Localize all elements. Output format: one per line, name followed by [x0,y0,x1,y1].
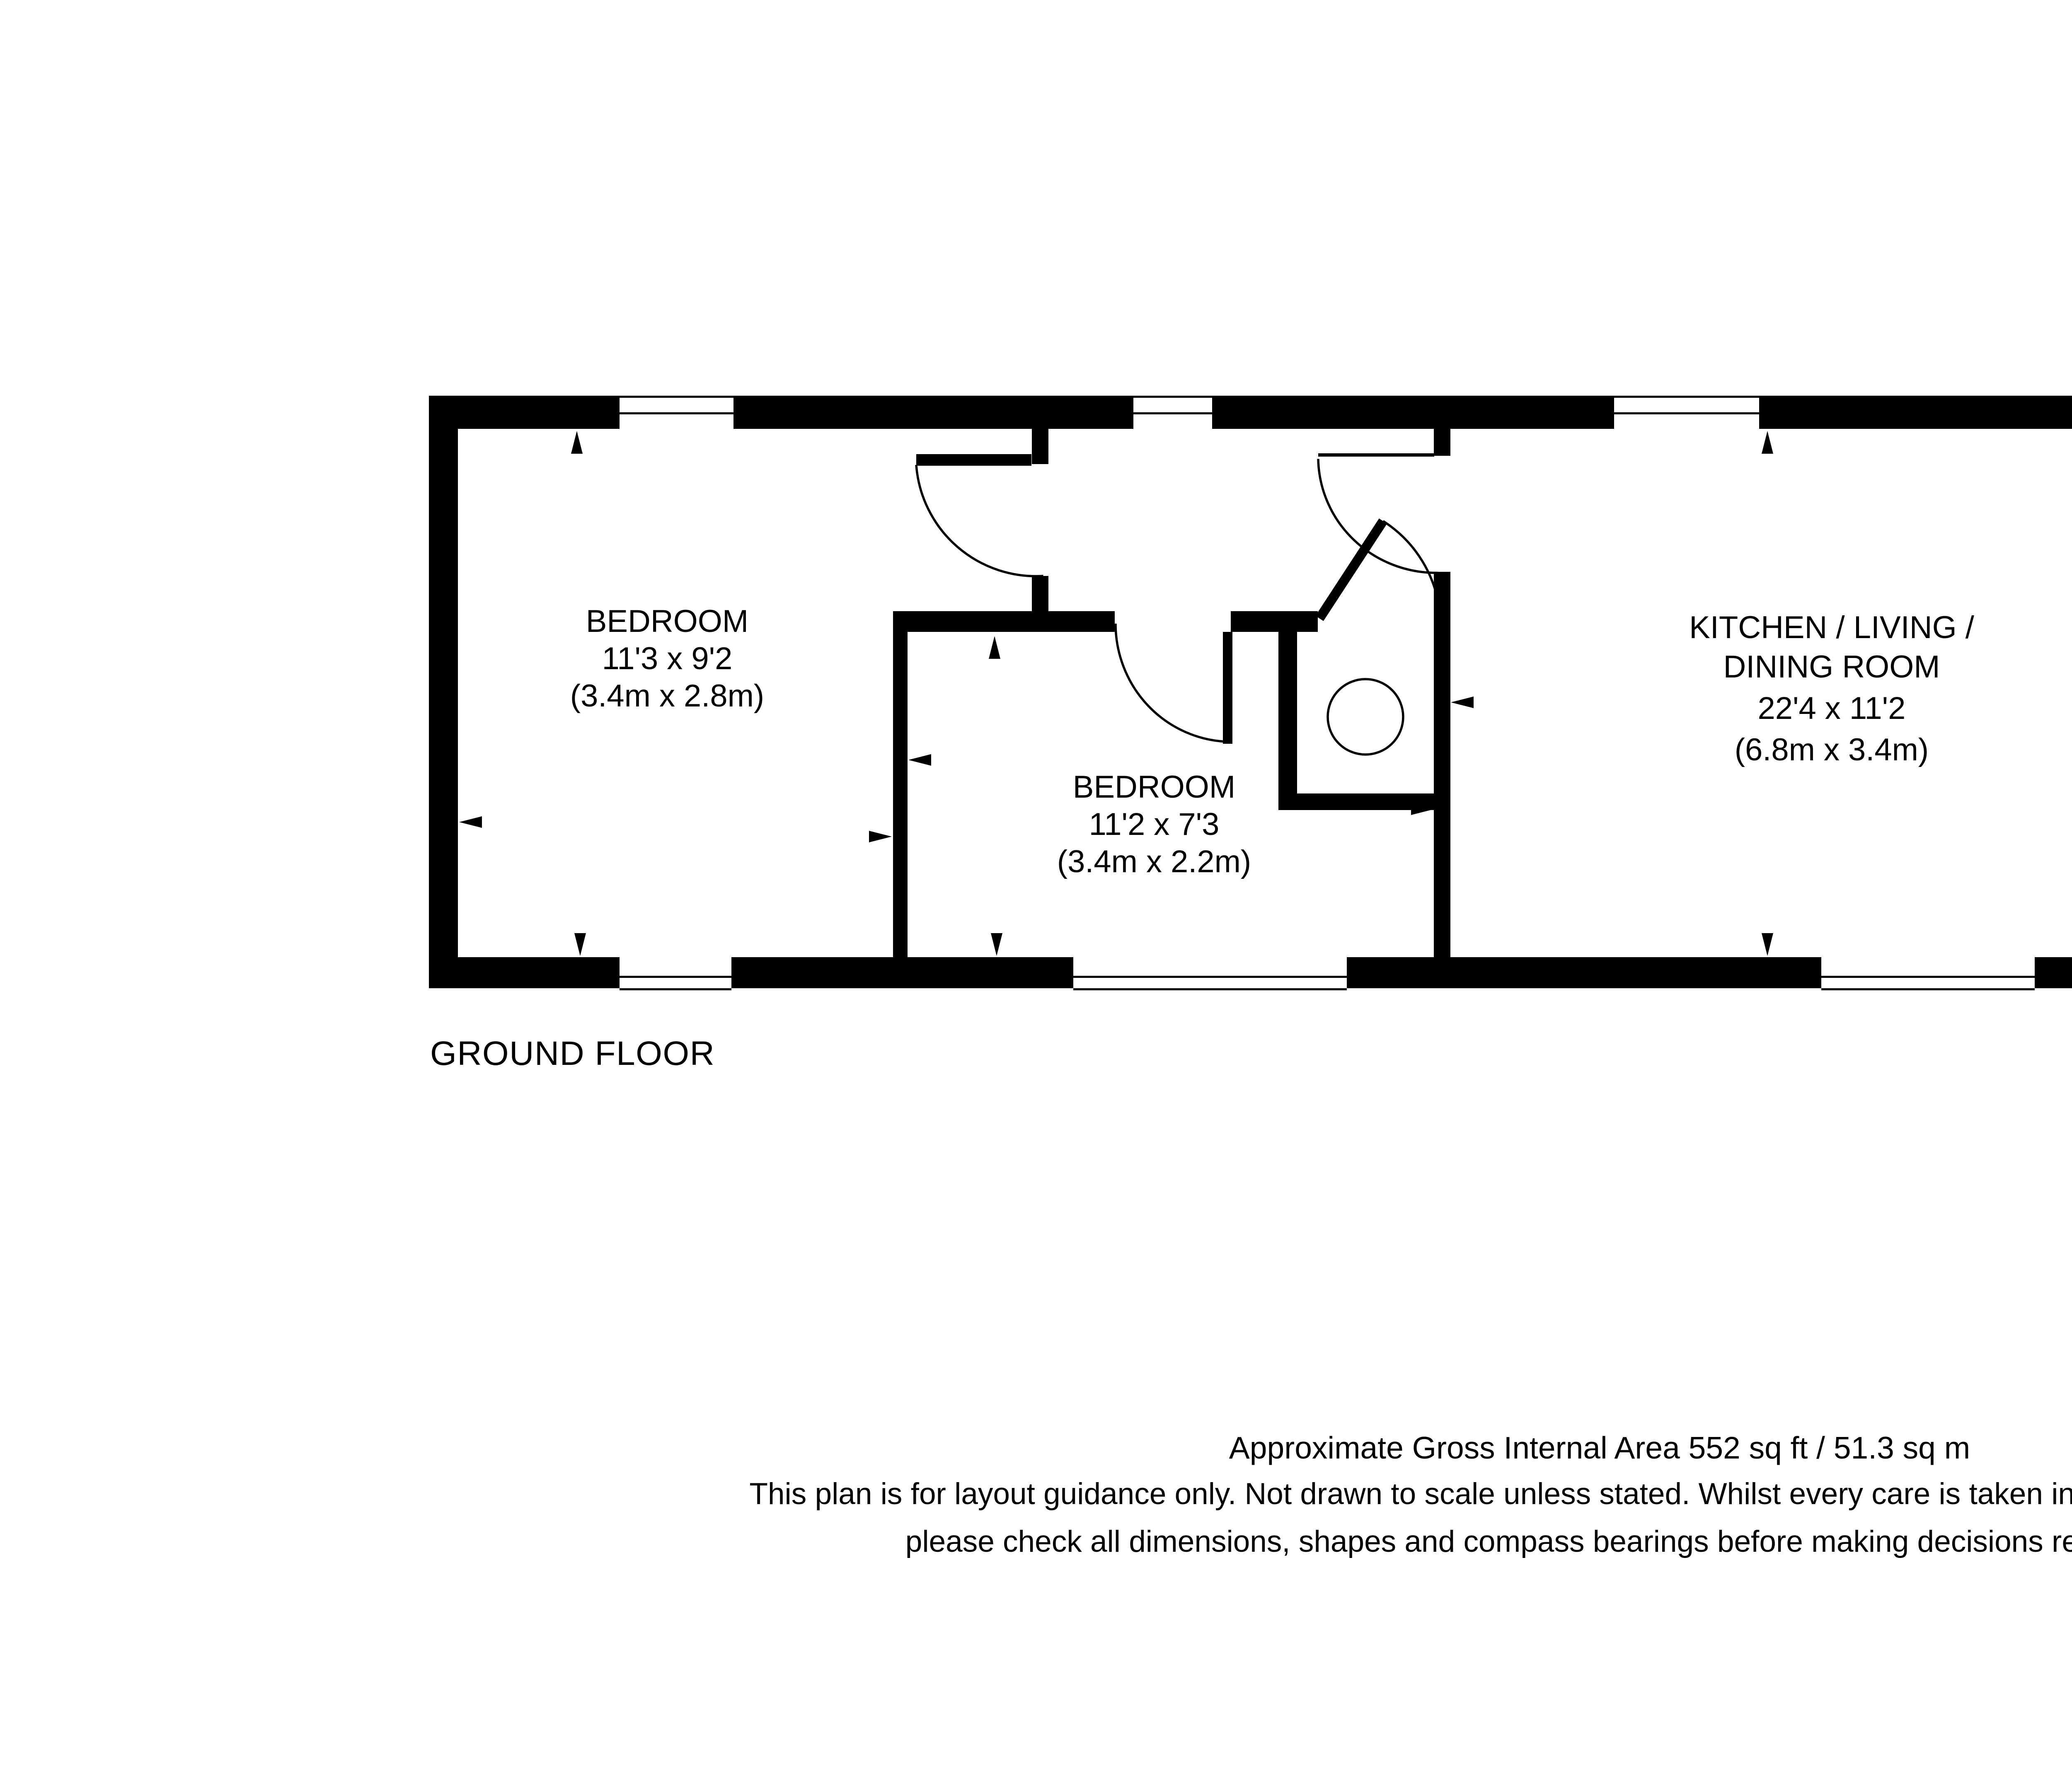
door-leaf-wc [1319,521,1383,619]
floorplan-page: BEDROOM 11'3 x 9'2 (3.4m x 2.8m) BEDROOM… [0,0,2072,1790]
room-dims-metric: (3.4m x 2.8m) [481,680,854,718]
room-dims-imperial: 11'3 x 9'2 [481,642,854,680]
room-label-bedroom1: BEDROOM 11'3 x 9'2 (3.4m x 2.8m) [481,604,854,718]
room-label-kitchen: KITCHEN / LIVING / DINING ROOM 22'4 x 11… [1624,608,2039,772]
room-dims-metric: (6.8m x 3.4m) [1624,731,2039,772]
room-name: DINING ROOM [1624,649,2039,690]
floor-label: GROUND FLOOR [430,1036,715,1075]
floorplan-canvas: BEDROOM 11'3 x 9'2 (3.4m x 2.8m) BEDROOM… [0,0,2072,1790]
cylinder-tank-icon [1328,679,1403,755]
disclaimer-line-1: This plan is for layout guidance only. N… [203,1479,2072,1512]
footer-notes: Approximate Gross Internal Area 552 sq f… [203,1432,2072,1559]
room-dims-imperial: 22'4 x 11'2 [1624,690,2039,731]
room-name: KITCHEN / LIVING / [1624,608,2039,649]
door-leaf-bedroom2 [1223,632,1232,744]
disclaimer-line-2: please check all dimensions, shapes and … [203,1526,2072,1559]
room-name: BEDROOM [968,770,1341,808]
gross-internal-area: Approximate Gross Internal Area 552 sq f… [203,1432,2072,1467]
room-label-bedroom2: BEDROOM 11'2 x 7'3 (3.4m x 2.2m) [968,770,1341,884]
room-name: BEDROOM [481,604,854,642]
door-leaf-bedroom1 [916,454,1031,466]
room-dims-imperial: 11'2 x 7'3 [968,808,1341,846]
room-dims-metric: (3.4m x 2.2m) [968,846,1341,884]
